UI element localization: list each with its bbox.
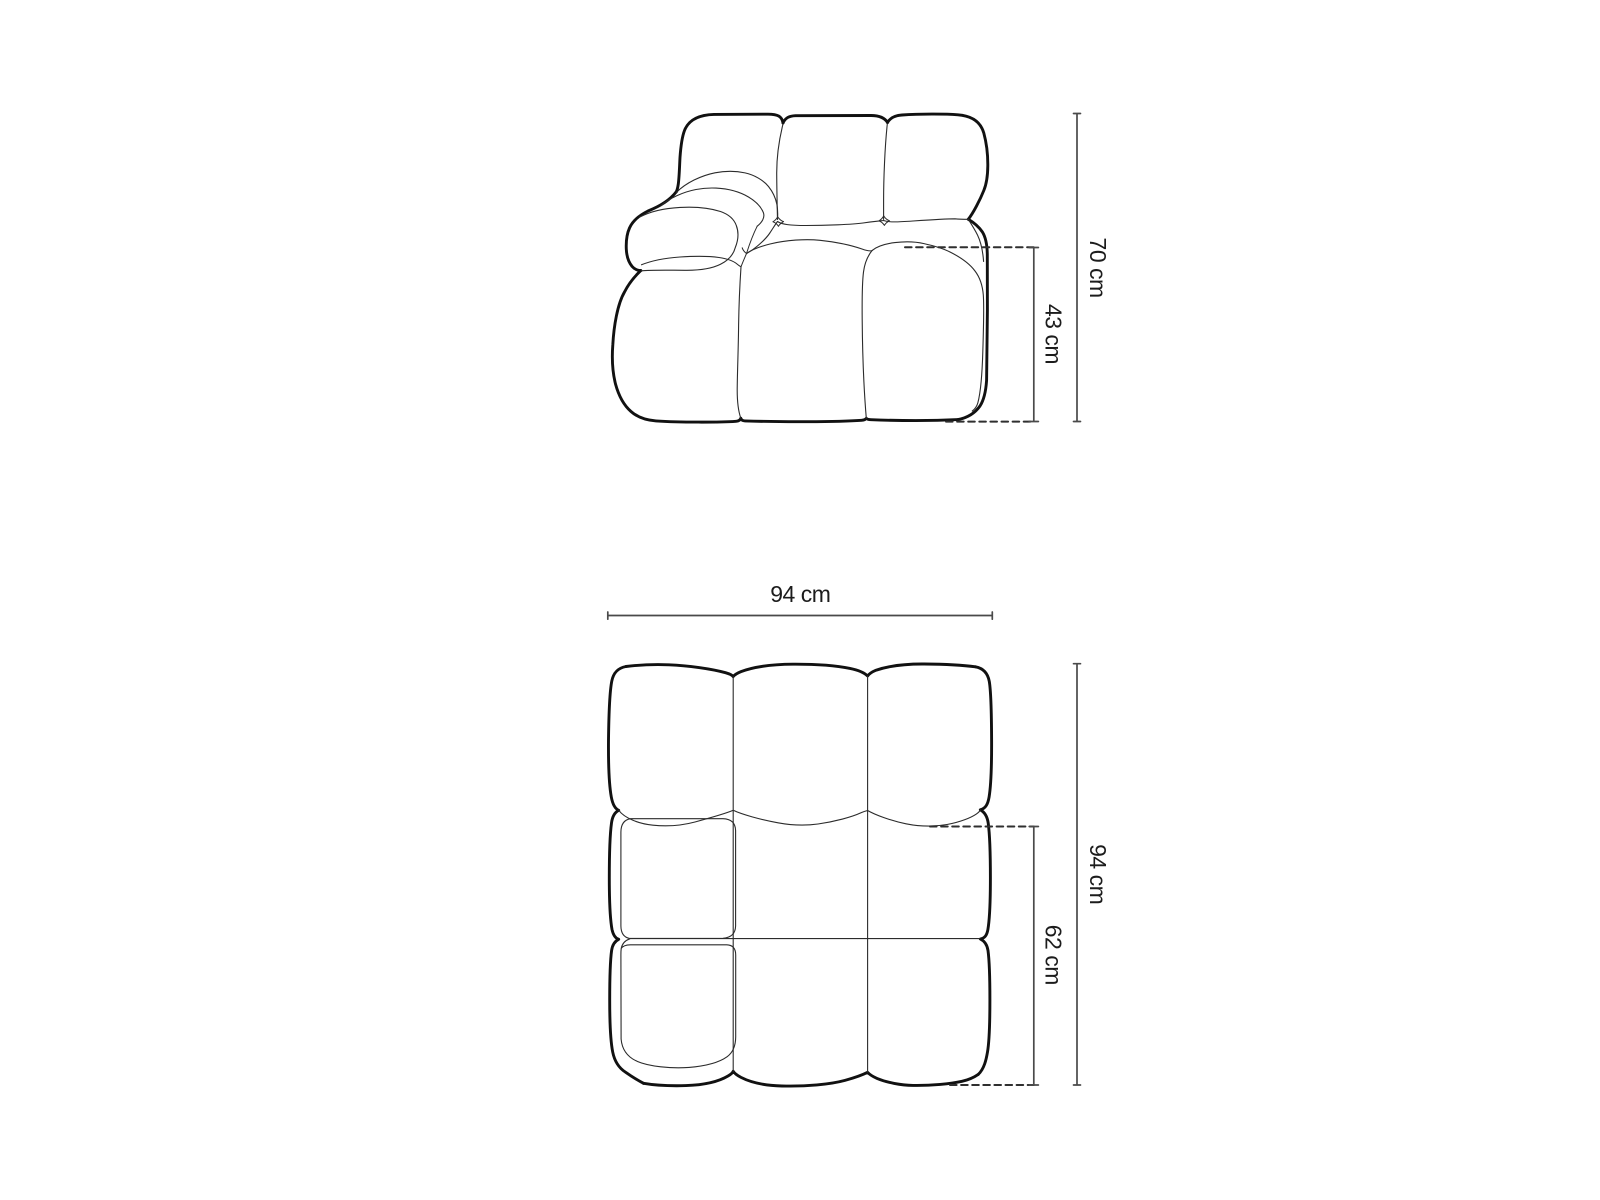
svg-text:62 cm: 62 cm	[1040, 925, 1066, 985]
svg-text:94 cm: 94 cm	[1085, 844, 1111, 904]
svg-text:43 cm: 43 cm	[1041, 304, 1067, 364]
svg-text:70 cm: 70 cm	[1085, 238, 1111, 298]
svg-text:94 cm: 94 cm	[770, 581, 830, 607]
